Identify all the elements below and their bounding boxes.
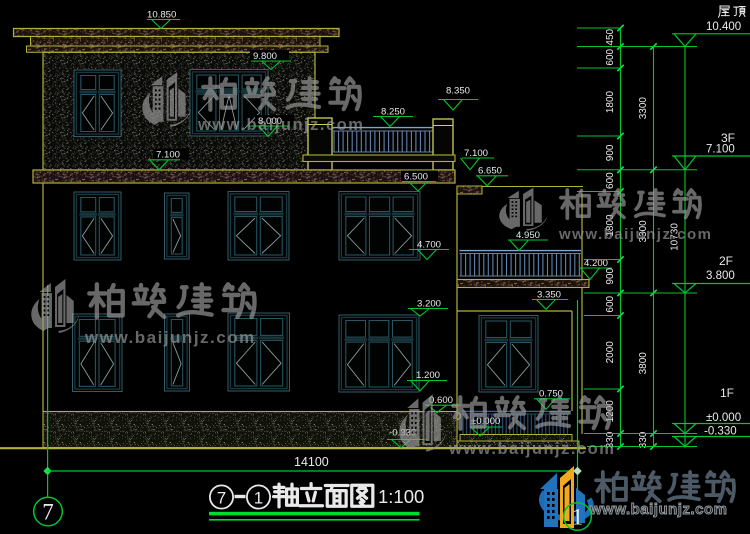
svg-text:3300: 3300: [638, 97, 649, 120]
svg-text:3800: 3800: [638, 352, 649, 375]
svg-text:900: 900: [605, 267, 616, 284]
svg-text:7.100: 7.100: [706, 144, 735, 156]
svg-text:2F: 2F: [719, 254, 733, 268]
svg-text:2000: 2000: [605, 341, 616, 364]
svg-text:6.650: 6.650: [478, 165, 502, 176]
svg-text:10.400: 10.400: [706, 21, 741, 33]
svg-text:www.baijunjz.com: www.baijunjz.com: [448, 440, 615, 458]
svg-text:10.850: 10.850: [147, 9, 176, 20]
svg-text:www.baijunjz.com: www.baijunjz.com: [589, 501, 727, 518]
svg-text:3.350: 3.350: [537, 289, 561, 300]
svg-text:8.350: 8.350: [446, 85, 470, 96]
svg-text:14100: 14100: [294, 455, 329, 469]
svg-text:600: 600: [605, 48, 616, 65]
svg-text:900: 900: [605, 144, 616, 161]
svg-text:4.700: 4.700: [417, 239, 441, 250]
svg-text:www.baijunjz.com: www.baijunjz.com: [558, 226, 712, 243]
svg-text:-0.330: -0.330: [704, 426, 737, 438]
svg-text:3.200: 3.200: [417, 298, 441, 309]
svg-text:7: 7: [217, 489, 226, 508]
svg-text:3.800: 3.800: [706, 270, 735, 282]
svg-text:www.baijunjz.com: www.baijunjz.com: [84, 328, 256, 347]
svg-text:8.250: 8.250: [381, 106, 405, 117]
svg-text:450: 450: [605, 28, 616, 45]
svg-text:1: 1: [572, 505, 584, 530]
svg-text:1: 1: [254, 489, 263, 508]
svg-text:7: 7: [42, 500, 54, 525]
svg-text:4.950: 4.950: [516, 230, 540, 241]
svg-text:7.100: 7.100: [464, 148, 488, 159]
svg-text:9.800: 9.800: [253, 51, 277, 62]
svg-text:1:100: 1:100: [378, 486, 424, 507]
svg-text:600: 600: [605, 172, 616, 189]
svg-text:7.100: 7.100: [156, 149, 180, 160]
svg-text:6.500: 6.500: [404, 171, 428, 182]
svg-text:1800: 1800: [605, 90, 616, 113]
svg-text:1.200: 1.200: [416, 370, 440, 381]
svg-text:www.baijunjz.com: www.baijunjz.com: [197, 116, 364, 134]
svg-text:1F: 1F: [720, 386, 734, 400]
svg-text:±0.000: ±0.000: [706, 412, 741, 424]
svg-text:600: 600: [605, 295, 616, 312]
